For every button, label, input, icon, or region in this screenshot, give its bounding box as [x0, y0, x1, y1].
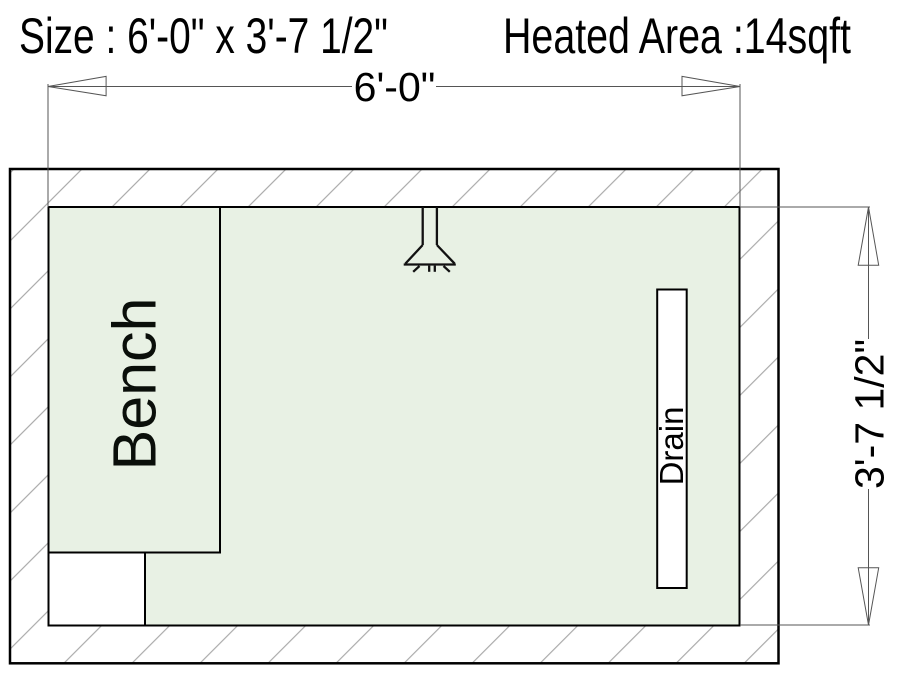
svg-text:Drain: Drain — [653, 407, 690, 486]
svg-text:6'-0": 6'-0" — [354, 64, 436, 110]
svg-text:3'-7 1/2": 3'-7 1/2" — [847, 339, 893, 489]
svg-text:Bench: Bench — [101, 298, 169, 471]
svg-text:Heated Area :14sqft: Heated Area :14sqft — [503, 8, 851, 64]
svg-text:Size : 6'-0" x 3'-7 1/2": Size : 6'-0" x 3'-7 1/2" — [19, 8, 388, 64]
